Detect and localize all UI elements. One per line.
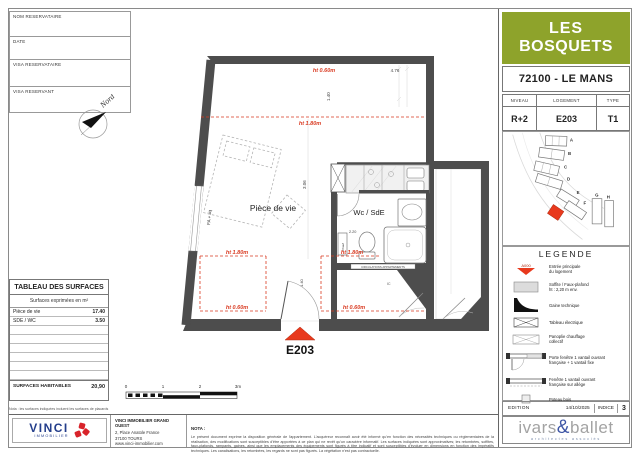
info-header: TYPE bbox=[597, 95, 629, 107]
sink-bowl bbox=[407, 168, 424, 178]
legend-item-tableau: Tableau électrique bbox=[503, 314, 629, 330]
site-plan: A B C D E F G H bbox=[502, 131, 630, 246]
total-label: SURFACES HABITABLES bbox=[13, 384, 71, 389]
table-row-empty bbox=[10, 362, 108, 371]
svg-text:E: E bbox=[577, 190, 580, 195]
height-label: ht 0.60m bbox=[226, 305, 248, 311]
vinci-division: IMMOBILIER bbox=[34, 434, 68, 438]
highlighted-building bbox=[547, 204, 563, 220]
project-line1: LES bbox=[549, 20, 583, 37]
info-type: TYPE T1 bbox=[597, 95, 629, 130]
electrical-panel-icon bbox=[503, 317, 549, 328]
project-line2: BOSQUETS bbox=[519, 37, 613, 56]
svg-text:1.40: 1.40 bbox=[326, 92, 331, 101]
legend-item-soffite: Soffite / Faux-plafond ht : 2,20 m env. bbox=[503, 277, 629, 296]
office-name: VINCI IMMOBILIER GRAND OUEST bbox=[115, 418, 184, 428]
svg-text:3.06: 3.06 bbox=[302, 180, 307, 189]
french-door-icon bbox=[503, 349, 549, 371]
architect-name: ivars&ballet bbox=[518, 420, 613, 436]
svg-text:B: B bbox=[568, 151, 571, 156]
room-label-wc: Wc / SdE bbox=[353, 208, 384, 217]
plan-sheet-page: NOM RESERVATAIRE DATE VISA RESERVATAIRE … bbox=[0, 0, 640, 453]
indice-value: 3 bbox=[617, 404, 629, 413]
nota-title: NOTA : bbox=[191, 426, 205, 431]
surface-table-title: TABLEAU DES SURFACES bbox=[10, 280, 108, 295]
nota-cell: NOTA : Le présent document exprime la di… bbox=[187, 415, 498, 447]
svg-text:H: H bbox=[607, 195, 610, 200]
soffit-icon bbox=[503, 281, 549, 293]
table-row: SDE / WC 3.50 bbox=[10, 317, 108, 326]
height-label: ht 1.80m bbox=[341, 250, 363, 256]
svg-text:0: 0 bbox=[125, 384, 128, 389]
vinci-logo-cell: VINCI IMMOBILIER bbox=[9, 415, 111, 447]
svg-text:F: F bbox=[583, 200, 586, 205]
row-value: 3.50 bbox=[95, 318, 105, 324]
vinci-address: VINCI IMMOBILIER GRAND OUEST 2, Place An… bbox=[111, 415, 187, 447]
row-label: Pièce de vie bbox=[13, 309, 40, 315]
info-niveau: NIVEAU R+2 bbox=[503, 95, 537, 130]
heating-panel-icon bbox=[503, 334, 549, 345]
entrance-arrow-icon bbox=[285, 327, 315, 340]
vinci-brand: VINCI bbox=[29, 423, 69, 434]
table-row-empty bbox=[10, 344, 108, 353]
sheet-border: NOM RESERVATAIRE DATE VISA RESERVATAIRE … bbox=[8, 8, 632, 448]
edition-label: EDITION bbox=[503, 406, 566, 411]
window-icon bbox=[503, 375, 549, 389]
duct-icon bbox=[503, 297, 549, 313]
legend-item-fenetre: Fenêtre 1 vantail ouvrant française sur … bbox=[503, 371, 629, 392]
architect-logo: ivars&ballet architectes associés bbox=[502, 416, 630, 444]
project-city: 72100 - LE MANS bbox=[502, 66, 630, 92]
title-block: LES BOSQUETS 72100 - LE MANS NIVEAU R+2 … bbox=[498, 9, 632, 447]
info-value: R+2 bbox=[503, 107, 536, 130]
electrical-panel bbox=[331, 164, 345, 192]
edition-row: EDITION 14/10/2025 INDICE 3 bbox=[502, 401, 630, 416]
svg-text:C: C bbox=[564, 165, 568, 170]
architect-tagline: architectes associés bbox=[531, 437, 601, 441]
legend-item-panoplie: Panoplie chauffage collectif bbox=[503, 330, 629, 348]
surface-table-subtitle: Surfaces exprimées en m² bbox=[10, 295, 108, 308]
vinci-logo: VINCI IMMOBILIER bbox=[12, 418, 107, 443]
field-label: VISA RESERVATAIRE bbox=[13, 62, 61, 67]
table-row-empty bbox=[10, 353, 108, 362]
bed-furniture bbox=[204, 135, 282, 227]
legend-item-gaine: Gaine technique bbox=[503, 296, 629, 314]
info-header: LOGEMENT bbox=[537, 95, 596, 107]
sink-bowl bbox=[407, 181, 424, 191]
unit-info-table: NIVEAU R+2 LOGEMENT E203 TYPE T1 bbox=[502, 94, 630, 131]
surface-table: TABLEAU DES SURFACES Surfaces exprimées … bbox=[9, 279, 109, 401]
info-value: T1 bbox=[597, 107, 629, 130]
window-label: FA + liq bbox=[206, 209, 212, 225]
field-label: NOM RESERVATAIRE bbox=[13, 14, 62, 19]
table-row: Pièce de vie 17.40 bbox=[10, 308, 108, 317]
row-label: SDE / WC bbox=[13, 318, 36, 324]
height-label: ht 1.80m bbox=[299, 121, 321, 127]
svg-text:1: 1 bbox=[162, 384, 165, 389]
svg-text:A000: A000 bbox=[521, 263, 531, 268]
info-header: NIVEAU bbox=[503, 95, 536, 107]
legend-title: LEGENDE bbox=[503, 247, 629, 260]
svg-text:G: G bbox=[595, 193, 599, 198]
scale-bar: 0 1 2 3m bbox=[125, 384, 242, 399]
project-title: LES BOSQUETS bbox=[502, 12, 630, 64]
edition-date: 14/10/2025 bbox=[566, 406, 590, 411]
ic-label: IC bbox=[387, 282, 391, 286]
table-row-empty bbox=[10, 371, 108, 380]
entrance-arrow-icon: A000 bbox=[503, 262, 549, 276]
field-label: DATE bbox=[13, 39, 25, 44]
svg-text:2: 2 bbox=[199, 384, 202, 389]
table-row-empty bbox=[10, 335, 108, 344]
north-arrow-icon bbox=[82, 112, 106, 128]
height-label: ht 0.60m bbox=[343, 305, 365, 311]
adjacent-structure bbox=[434, 161, 489, 331]
unit-label: E203 bbox=[286, 343, 314, 357]
legend: LEGENDE A000 Entrée principale du logeme… bbox=[502, 246, 630, 401]
svg-text:3m: 3m bbox=[235, 384, 242, 389]
height-label: ht 1.80m bbox=[226, 250, 248, 256]
table-row-empty bbox=[10, 392, 108, 400]
height-label: ht 0.60m bbox=[313, 68, 335, 74]
info-logement: LOGEMENT E203 bbox=[537, 95, 597, 130]
svg-text:A: A bbox=[570, 137, 574, 142]
website: www.vinci-immobilier.com bbox=[115, 441, 184, 447]
washbasin bbox=[398, 199, 426, 226]
window-left-wall: FA + liq bbox=[189, 186, 212, 252]
total-value: 20,90 bbox=[91, 384, 105, 390]
shower bbox=[384, 227, 426, 263]
svg-text:2.20: 2.20 bbox=[349, 230, 356, 234]
table-row-empty bbox=[10, 326, 108, 335]
legend-item-entrance: A000 Entrée principale du logement bbox=[503, 260, 629, 277]
row-value: 17.40 bbox=[92, 309, 105, 315]
wall-note: CIRCULATIONS APPARTEMENTS bbox=[361, 265, 405, 269]
svg-text:4.76: 4.76 bbox=[391, 68, 400, 73]
site-plan-map: A B C D E F G H bbox=[503, 132, 629, 245]
footer-band: VINCI IMMOBILIER VINCI IMMOBILIER GRAND … bbox=[9, 414, 498, 447]
svg-text:D: D bbox=[567, 176, 570, 181]
field-label: VISA RESERVANT bbox=[13, 89, 54, 94]
nota-text: Le présent document exprime la dispositi… bbox=[191, 435, 494, 453]
table-total-row: SURFACES HABITABLES 20,90 bbox=[10, 380, 108, 392]
floor-plan: FA + liq bbox=[111, 9, 501, 411]
technical-shaft: IC bbox=[387, 270, 426, 317]
legend-item-porte-fenetre: Porte fenêtre 1 vantail ouvrant français… bbox=[503, 348, 629, 371]
kitchen-counter bbox=[337, 164, 429, 194]
indice-label: INDICE bbox=[594, 404, 617, 413]
room-label-living: Pièce de vie bbox=[250, 203, 297, 213]
vinci-mark-icon bbox=[72, 422, 90, 440]
info-value: E203 bbox=[537, 107, 596, 130]
